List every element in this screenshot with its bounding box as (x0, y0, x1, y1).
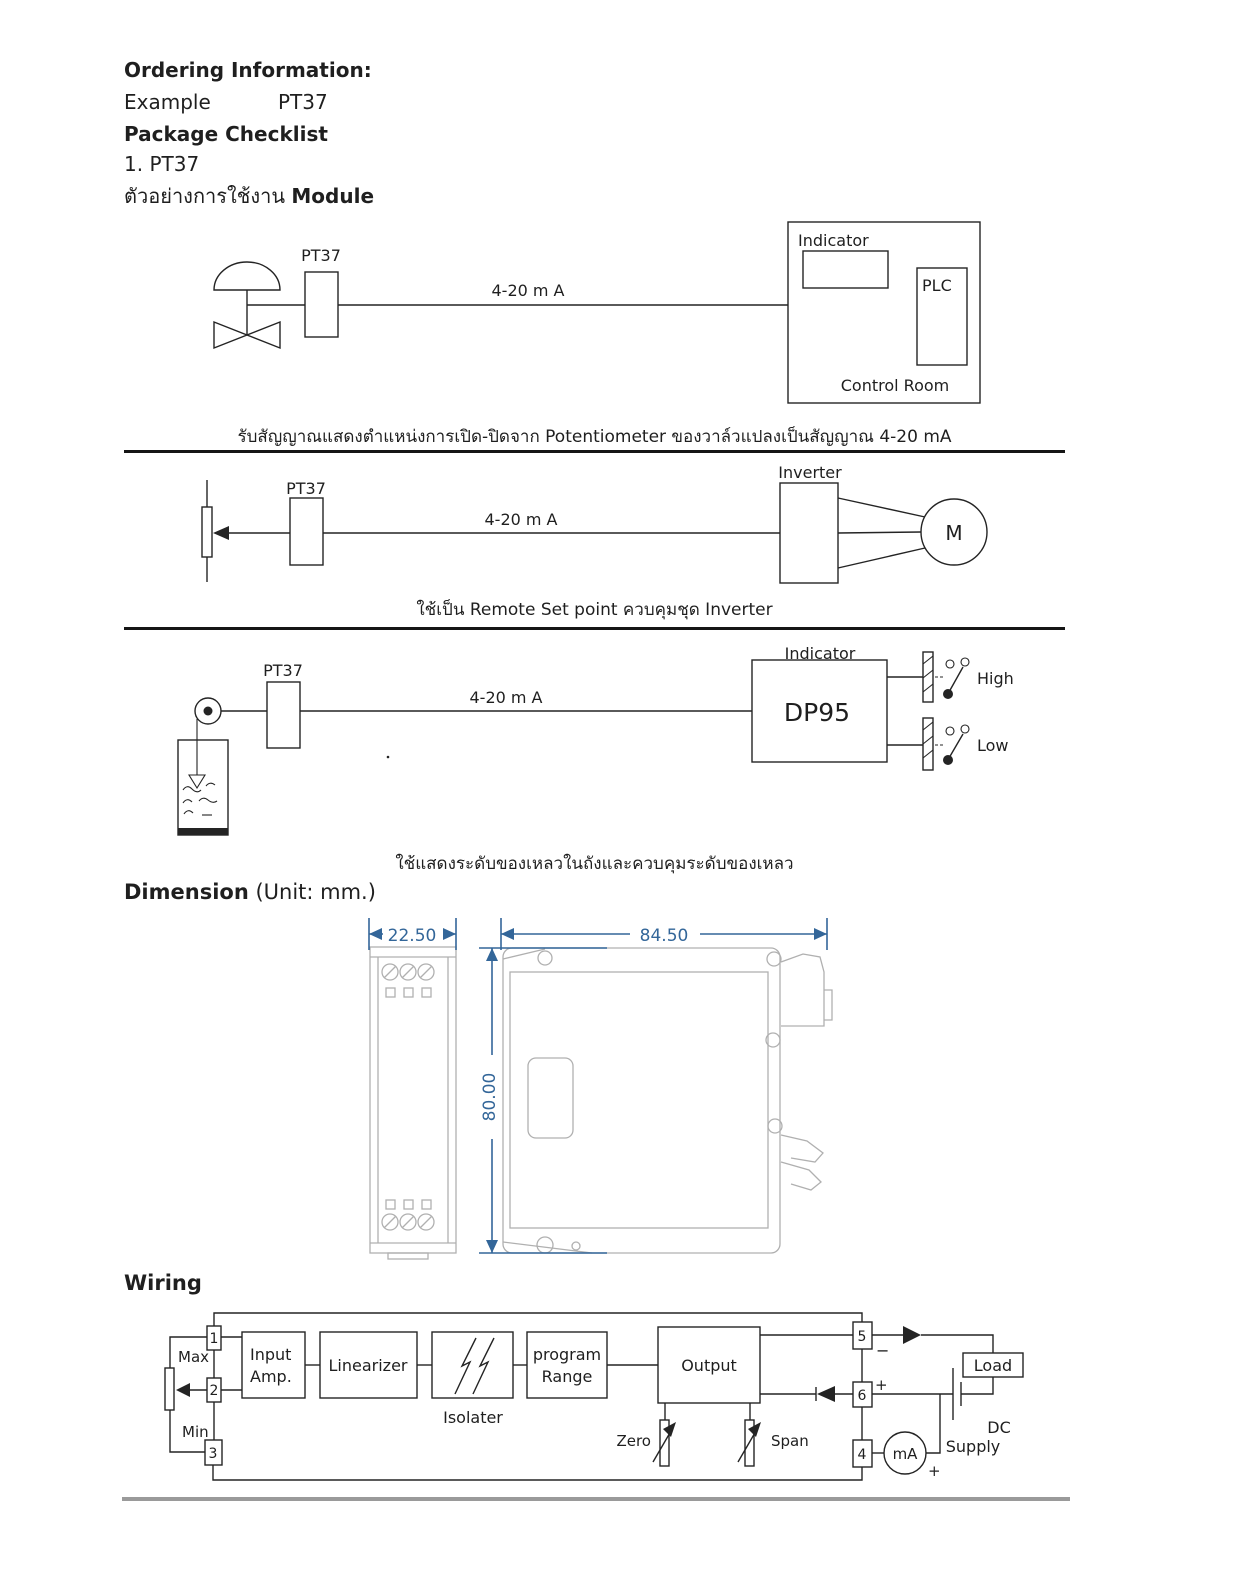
terminal-2-label: 2 (210, 1383, 219, 1399)
terminal-screws-bottom (382, 1200, 434, 1230)
tank-icon (178, 740, 228, 835)
dc-supply-label-1: DC (987, 1418, 1011, 1437)
side-width-dim: 84.50 (640, 926, 689, 946)
side-height-dim: 80.00 (480, 1073, 500, 1122)
minus-label: − (876, 1341, 889, 1360)
signal-label: 4-20 m A (484, 510, 557, 529)
min-label: Min (182, 1423, 209, 1441)
max-label: Max (178, 1348, 209, 1366)
wiring-diagram: Max Min 1 2 3 Input Amp. Linearizer Isol (165, 1313, 1023, 1480)
program-range-block (527, 1332, 607, 1398)
terminal-6-label: 6 (858, 1388, 867, 1404)
signal-label: 4-20 m A (469, 688, 542, 707)
plc-label: PLC (922, 276, 952, 295)
indicator-label: Indicator (798, 231, 869, 250)
battery-icon (953, 1368, 961, 1420)
program-range-label-2: Range (542, 1367, 593, 1386)
bottom-rail-wire (213, 1465, 862, 1480)
high-label: High (977, 669, 1014, 688)
zero-label: Zero (616, 1432, 651, 1450)
bottom-tab (388, 1253, 428, 1259)
arrowhead-icon (213, 526, 229, 540)
load-label: Load (974, 1356, 1012, 1375)
output-label: Output (681, 1356, 737, 1375)
diode-icon (817, 1386, 835, 1402)
pt37-module-box (290, 498, 323, 565)
module-side-view (503, 948, 832, 1253)
terminal-3-label: 3 (209, 1446, 218, 1462)
program-range-label-1: program (533, 1345, 601, 1364)
terminal-4-label: 4 (858, 1447, 867, 1463)
application-diagram-1: PT37 4-20 m A Indicator PLC Control Room (214, 222, 980, 403)
module-label: PT37 (286, 479, 326, 498)
load-battery-wire (961, 1377, 993, 1394)
dp95-label: DP95 (784, 698, 850, 727)
terminal-screws-top (382, 964, 434, 997)
diode-icon (903, 1326, 921, 1344)
plus-label-t6: + (875, 1376, 888, 1394)
diode-load-wire (921, 1335, 993, 1353)
diagram-overlay: PT37 4-20 m A Indicator PLC Control Room… (0, 0, 1236, 1569)
isolator-block (432, 1332, 513, 1398)
datasheet-page: Ordering Information: ExamplePT37 Packag… (0, 0, 1236, 1569)
low-label: Low (977, 736, 1009, 755)
application-diagram-3: PT37 4-20 m A Indicator DP95 High (178, 644, 1014, 835)
linearizer-label: Linearizer (329, 1356, 408, 1375)
motor-wire-1 (838, 498, 925, 517)
dimension-drawing: 22.50 84.50 80.00 (369, 918, 832, 1259)
span-label: Span (771, 1432, 809, 1450)
inverter-box (780, 483, 838, 583)
module-label: PT37 (301, 246, 341, 265)
potentiometer-icon (202, 480, 212, 582)
application-diagram-2: PT37 4-20 m A Inverter M (202, 463, 987, 583)
high-relay-switch-icon (923, 652, 969, 702)
ma-meter-label: mA (893, 1445, 919, 1463)
isolator-label: Isolater (443, 1408, 503, 1427)
pt37-module-box (267, 682, 300, 748)
pt37-module-box (305, 272, 338, 337)
dc-supply-label-2: Supply (946, 1437, 1001, 1456)
dimension-lines: 22.50 84.50 80.00 (369, 918, 827, 1253)
motor-wire-2 (838, 532, 921, 533)
low-relay-switch-icon (923, 718, 969, 770)
inverter-label: Inverter (778, 463, 842, 482)
module-label: PT37 (263, 661, 303, 680)
span-trimmer-icon (738, 1403, 761, 1466)
input-amp-block (242, 1332, 305, 1398)
motor-wire-3 (838, 548, 925, 568)
plus-label-meter: + (928, 1462, 941, 1480)
front-width-dim: 22.50 (388, 926, 437, 946)
top-rail-wire (214, 1313, 862, 1326)
signal-label: 4-20 m A (491, 281, 564, 300)
input-amp-label-1: Input (250, 1345, 291, 1364)
label-slot (528, 1058, 573, 1138)
zero-trimmer-icon (653, 1403, 676, 1466)
meter-supply-wire (926, 1394, 940, 1453)
level-sensor-icon (189, 698, 221, 788)
control-room-label: Control Room (841, 376, 949, 395)
terminal-1-label: 1 (210, 1331, 219, 1347)
speck (387, 756, 390, 759)
module-front-view (370, 947, 456, 1259)
terminal-5-label: 5 (858, 1329, 867, 1345)
din-rail-clips (781, 954, 832, 1190)
indicator-display-box (803, 251, 888, 288)
motor-label: M (945, 521, 962, 545)
input-amp-label-2: Amp. (250, 1367, 292, 1386)
